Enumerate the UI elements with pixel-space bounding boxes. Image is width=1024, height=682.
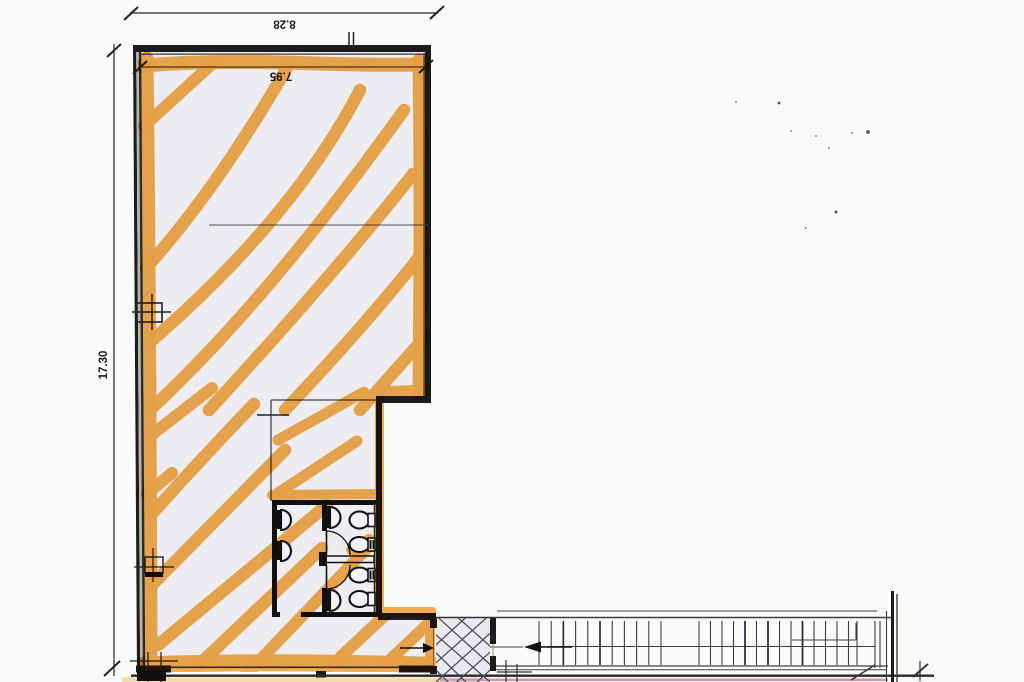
svg-text:17.30: 17.30 <box>98 351 110 380</box>
svg-text:8.28: 8.28 <box>273 17 296 29</box>
